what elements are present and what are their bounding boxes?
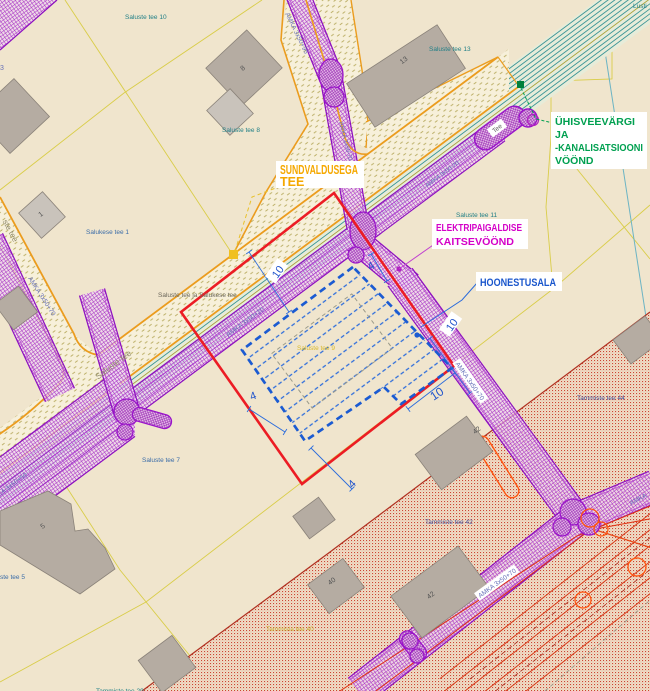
svg-text:Saluste tee ja Salukese tee: Saluste tee ja Salukese tee [158,292,237,299]
svg-text:Tammiste tee 44: Tammiste tee 44 [577,395,625,402]
svg-text:Saluste tee 8: Saluste tee 8 [222,127,260,134]
svg-text:KAITSEVÖÖND: KAITSEVÖÖND [436,235,514,248]
svg-text:Saluste tee 7: Saluste tee 7 [142,457,180,464]
svg-text:VÖÖND: VÖÖND [555,154,594,167]
svg-text:JA: JA [555,129,569,141]
svg-text:3: 3 [0,65,4,72]
svg-text:TEE: TEE [280,175,304,189]
svg-text:ELEKTRIPAIGALDISE: ELEKTRIPAIGALDISE [436,222,522,234]
svg-text:Tammista tee 40: Tammista tee 40 [266,626,314,633]
svg-text:-KANALISATSIOONI: -KANALISATSIOONI [555,142,643,154]
svg-text:Lusti: Lusti [633,3,647,10]
svg-text:Saluste tee 13: Saluste tee 13 [429,46,471,53]
svg-text:Salukese tee 1: Salukese tee 1 [86,229,129,236]
svg-text:Saluste tee 11: Saluste tee 11 [456,212,497,219]
svg-text:ÜHISVEEVÄRGI: ÜHISVEEVÄRGI [555,115,635,128]
svg-text:ste tee 5: ste tee 5 [0,574,25,581]
svg-text:Tammiste tee 42: Tammiste tee 42 [425,519,473,526]
svg-text:HOONESTUSALA: HOONESTUSALA [480,277,556,289]
svg-text:Saluste tee 10: Saluste tee 10 [125,14,167,21]
svg-text:Saluste tee 9: Saluste tee 9 [297,345,335,352]
